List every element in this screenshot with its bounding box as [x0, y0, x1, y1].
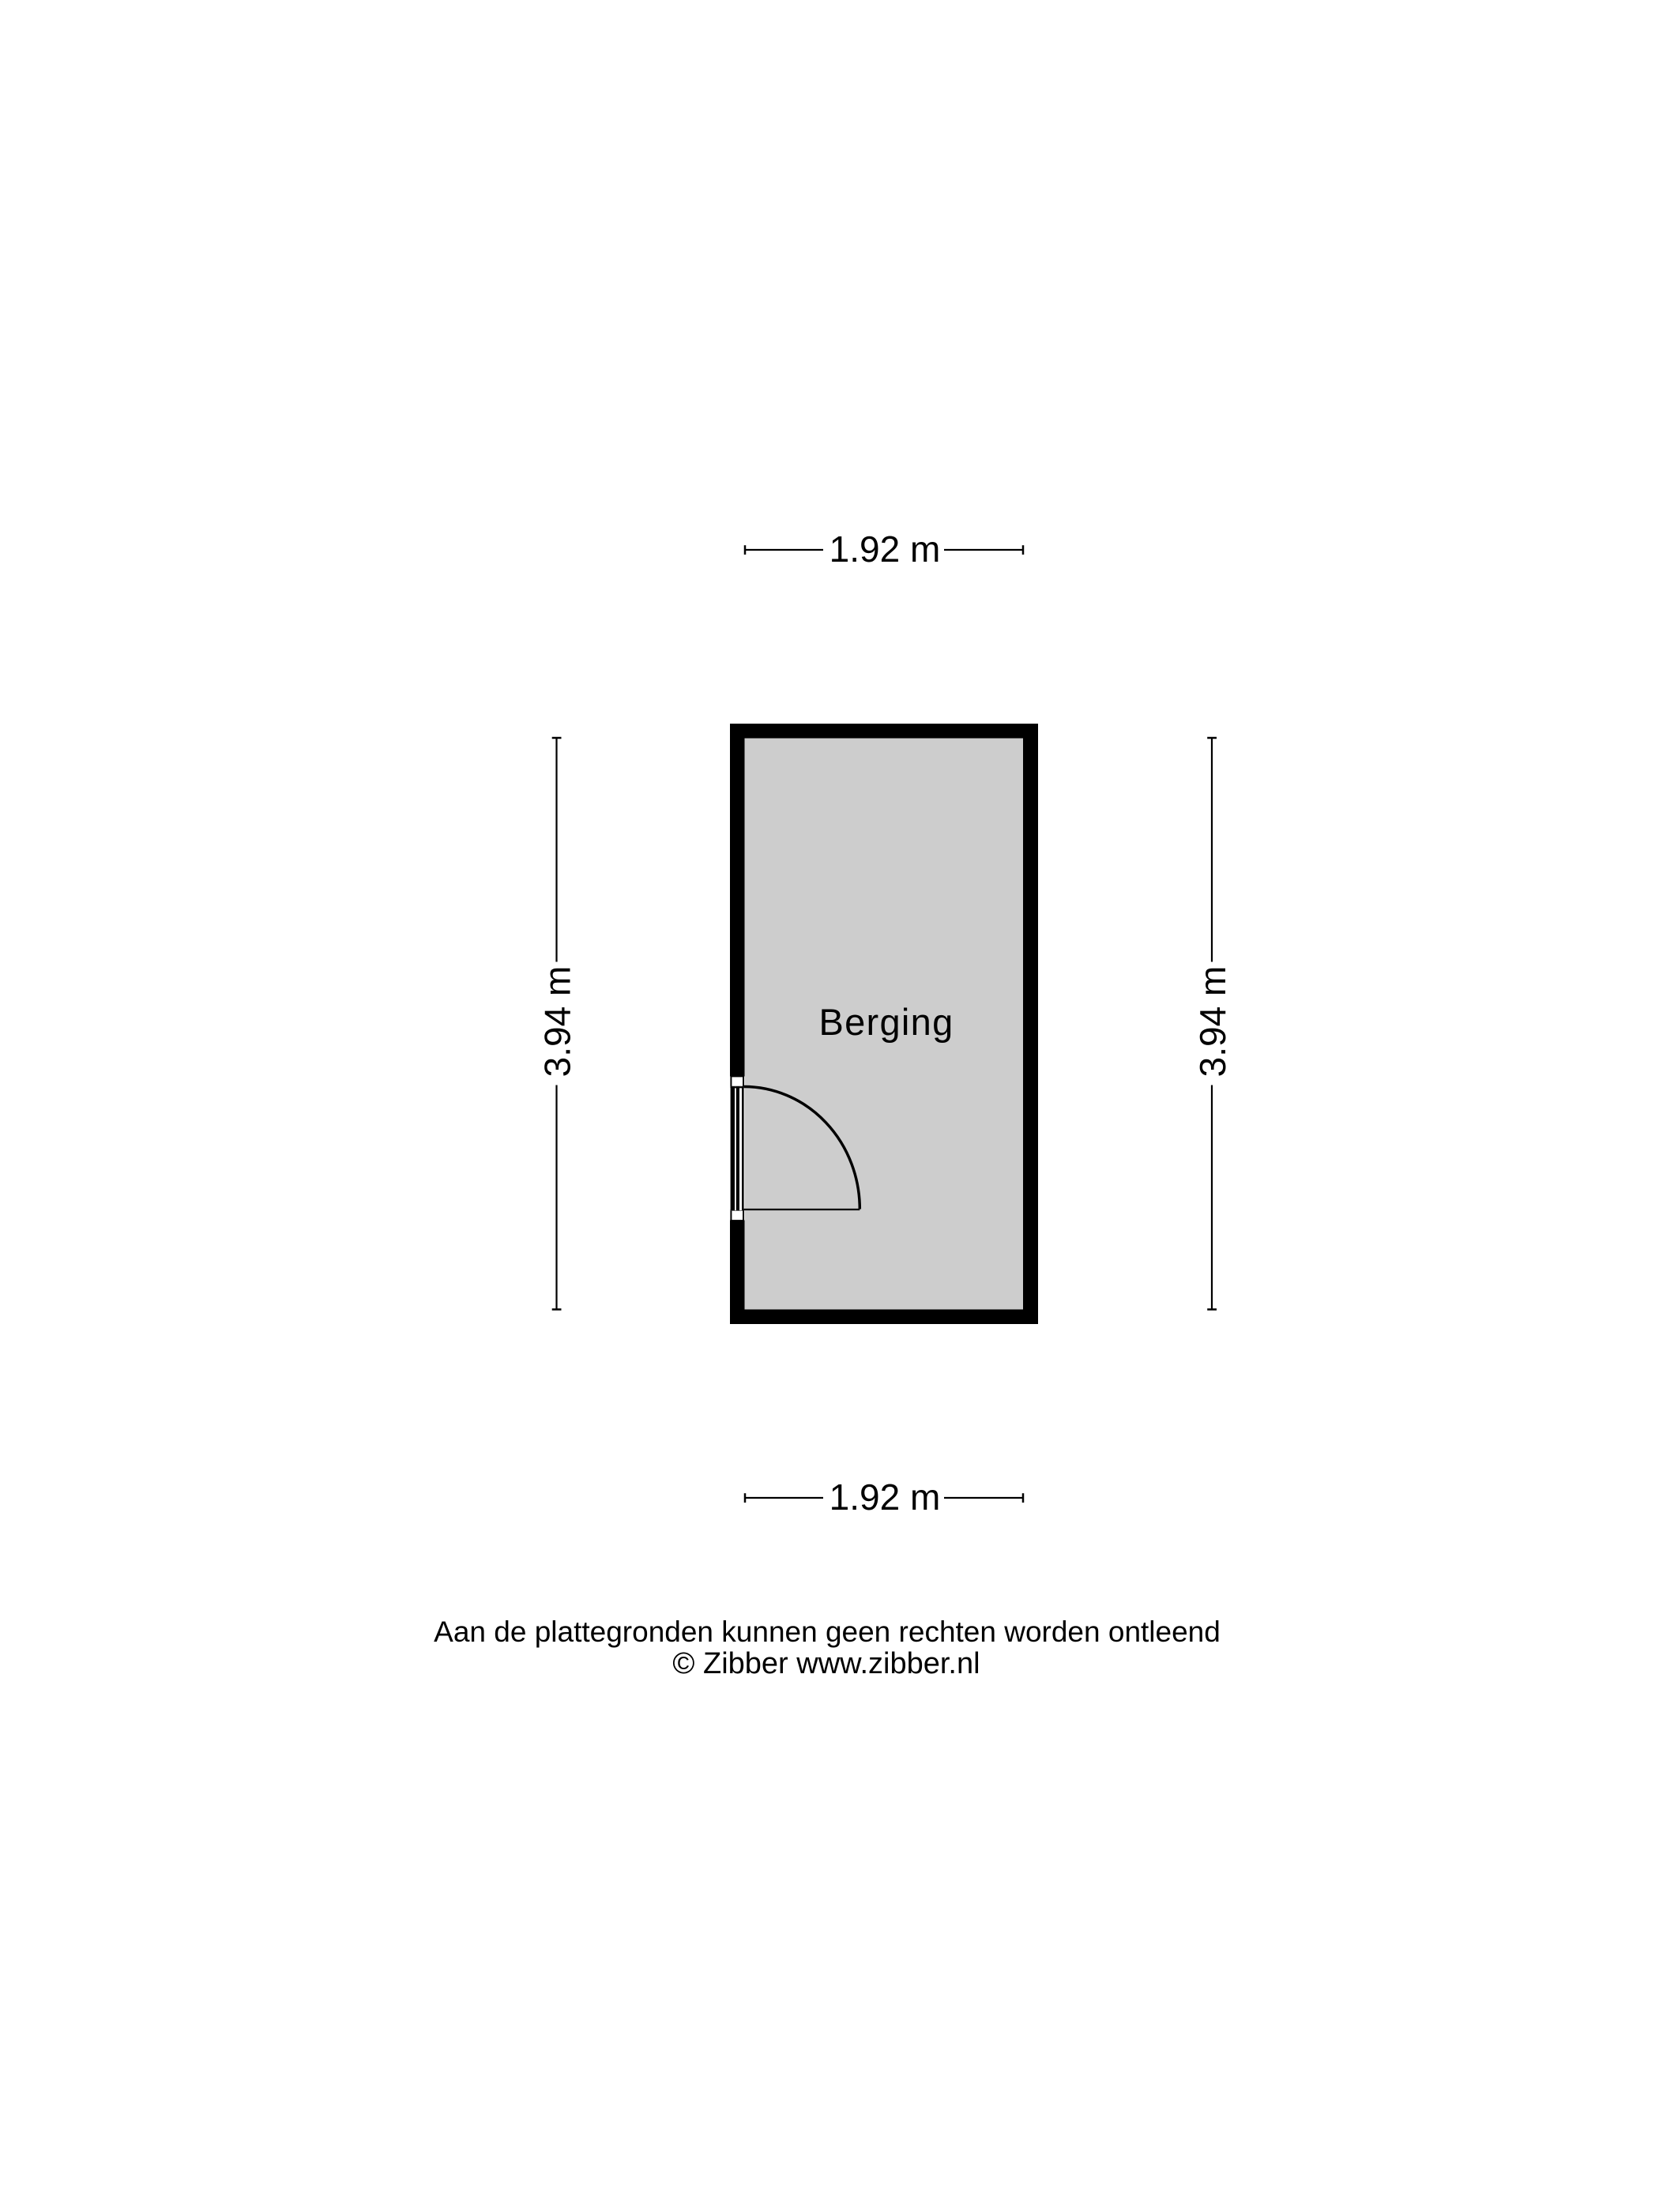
svg-text:Aan de plattegronden kunnen ge: Aan de plattegronden kunnen geen rechten…	[434, 1616, 1221, 1648]
svg-text:1.92 m: 1.92 m	[829, 1477, 941, 1518]
svg-text:3.94 m: 3.94 m	[537, 966, 578, 1078]
svg-text:Berging: Berging	[818, 1001, 954, 1043]
svg-text:3.94 m: 3.94 m	[1192, 966, 1233, 1078]
svg-text:1.92 m: 1.92 m	[829, 529, 941, 570]
svg-text:© Zibber www.zibber.nl: © Zibber www.zibber.nl	[672, 1647, 980, 1680]
